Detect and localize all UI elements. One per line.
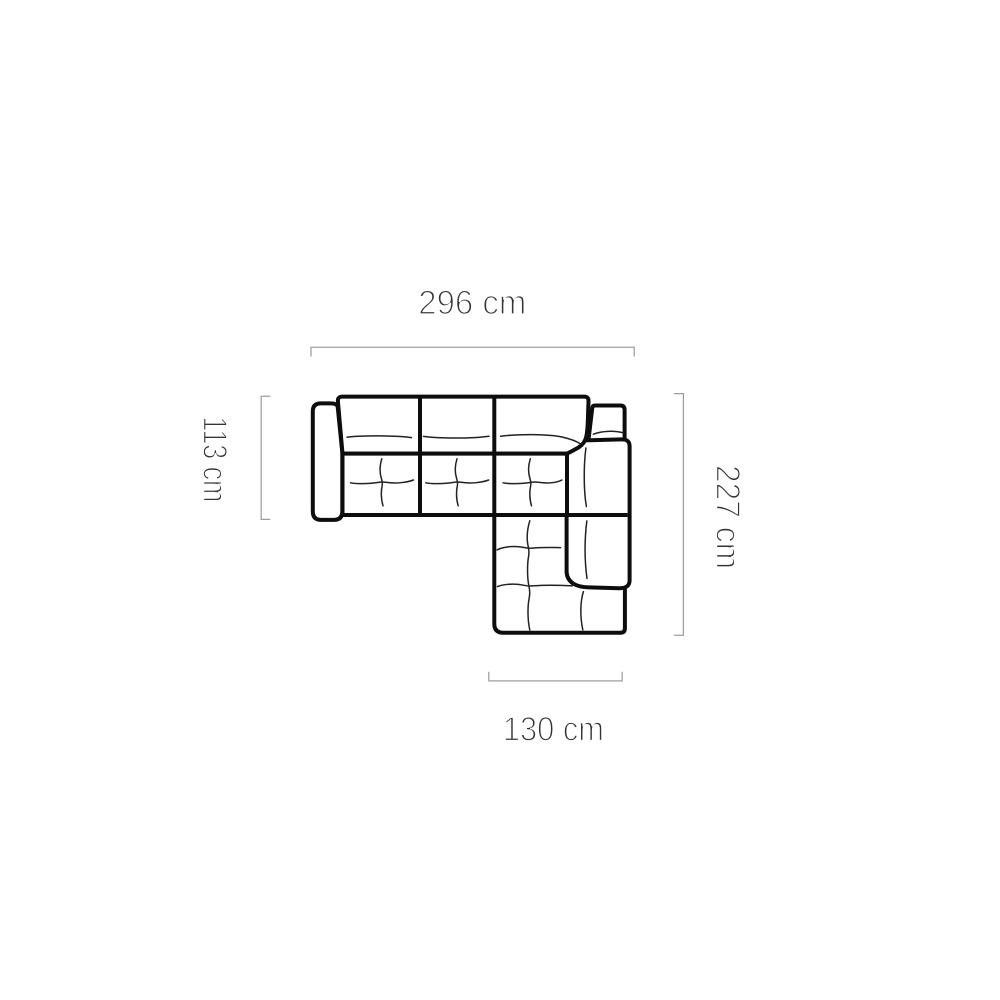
svg-text:227 cm: 227 cm [709, 465, 747, 569]
svg-text:130 cm: 130 cm [503, 711, 604, 749]
svg-text:296 cm: 296 cm [418, 284, 526, 322]
svg-text:113 cm: 113 cm [196, 416, 234, 502]
